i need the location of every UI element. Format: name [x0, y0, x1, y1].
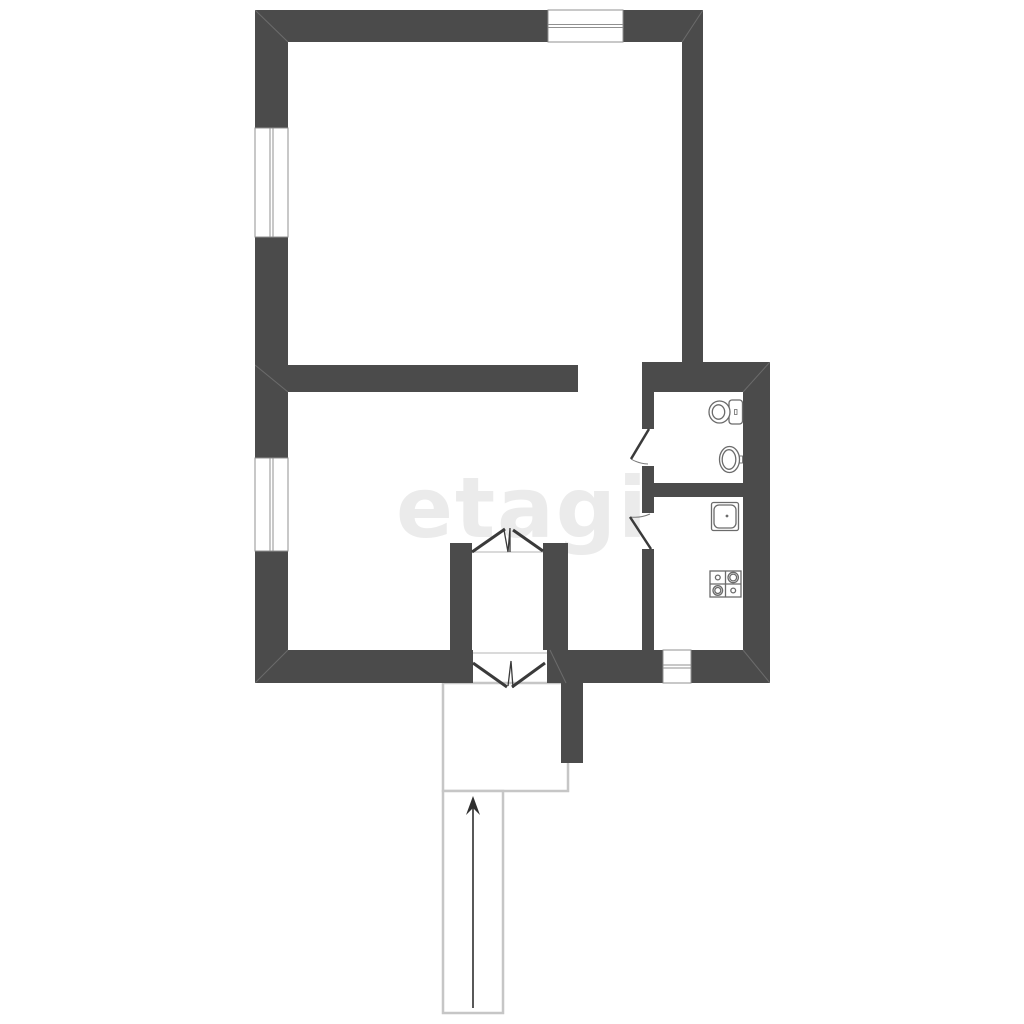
top-room-right-wall — [682, 42, 703, 392]
porch — [443, 683, 568, 791]
top-wall-right — [623, 10, 703, 42]
toilet-icon — [709, 400, 743, 424]
window-bottom — [663, 650, 691, 683]
top-wall-left — [255, 10, 548, 42]
bottom-wall-right — [691, 650, 770, 683]
wc-kitchen-divider — [642, 483, 743, 497]
floor-plan-svg — [0, 0, 1024, 1024]
partition-upper — [642, 392, 654, 429]
window-top — [548, 10, 623, 42]
right-wall-lower — [743, 392, 770, 683]
wc-door — [631, 429, 649, 464]
porch-wall-stub — [561, 683, 583, 763]
vestibule-right-wall — [543, 543, 568, 650]
left-wall-upper — [255, 10, 288, 128]
vestibule-inner-door — [472, 528, 543, 552]
left-wall-middle — [255, 237, 288, 458]
window-left-lower — [255, 458, 288, 551]
middle-wall — [255, 365, 578, 392]
floor-plan: etagi — [0, 0, 1024, 1024]
stove-icon — [710, 571, 741, 597]
vestibule-left-wall — [450, 543, 472, 650]
bathroom-top-wall — [642, 362, 770, 392]
window-left-upper — [255, 128, 288, 237]
kitchen-door — [630, 514, 651, 549]
wash-basin-icon — [720, 447, 743, 473]
bottom-wall-middle — [547, 650, 663, 683]
bottom-wall-left — [255, 650, 473, 683]
kitchen-sink-icon — [712, 503, 739, 531]
partition-lower — [642, 549, 654, 650]
